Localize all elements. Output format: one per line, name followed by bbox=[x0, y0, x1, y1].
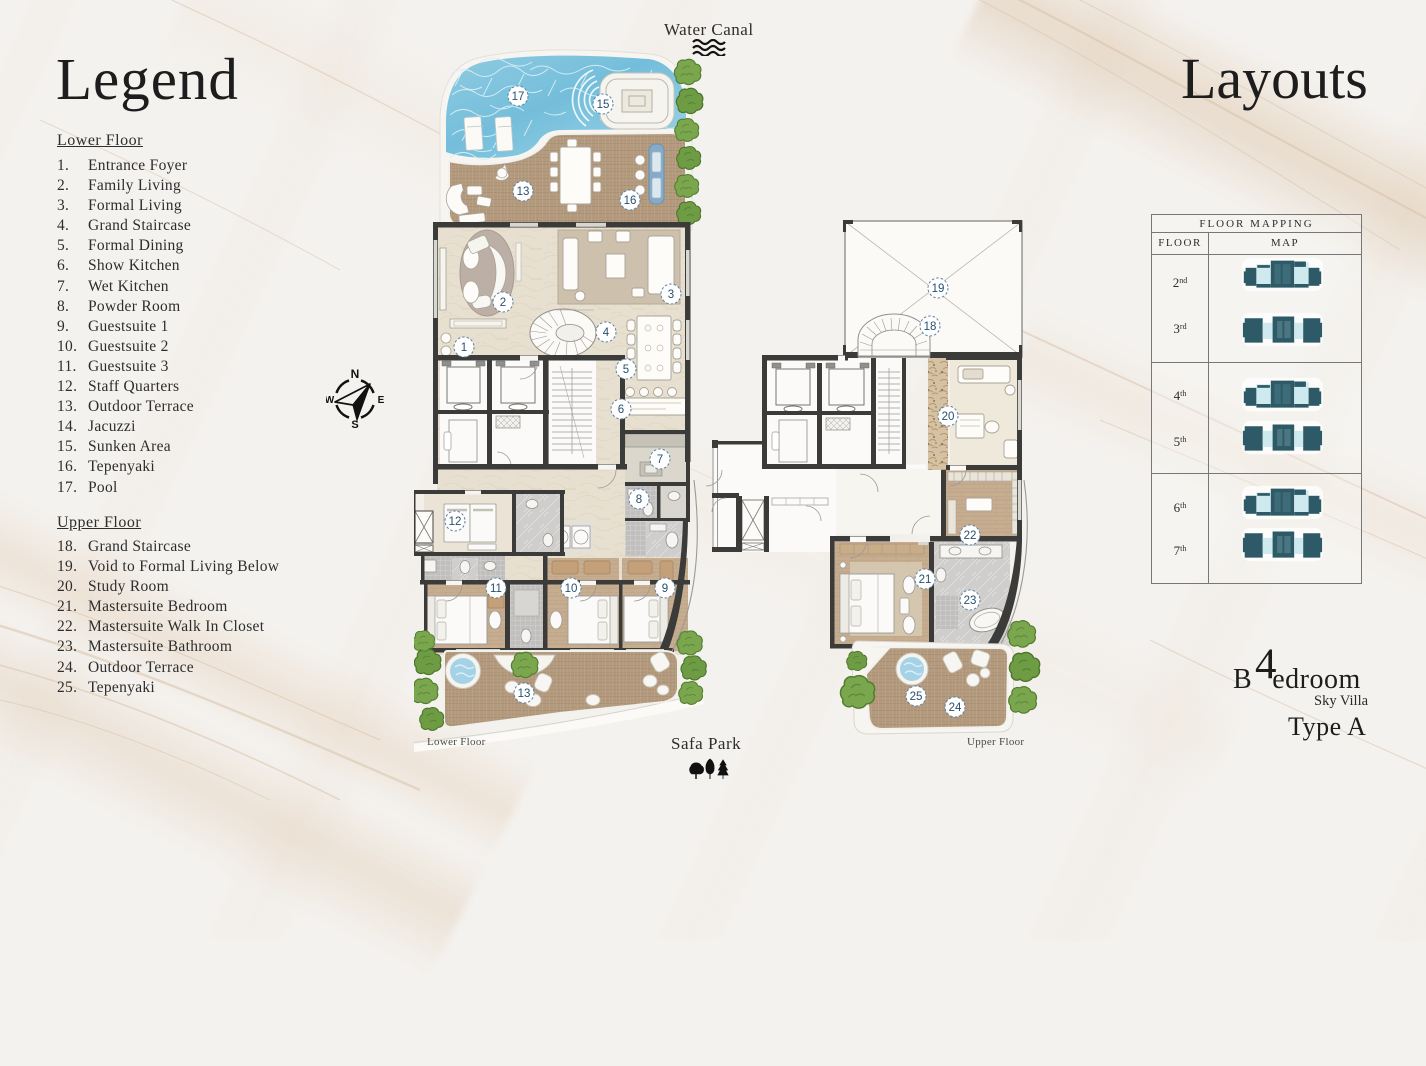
svg-text:S: S bbox=[351, 419, 358, 430]
svg-text:13: 13 bbox=[517, 186, 530, 198]
svg-text:23: 23 bbox=[964, 595, 977, 607]
svg-text:10: 10 bbox=[565, 583, 578, 595]
svg-text:25: 25 bbox=[910, 691, 923, 703]
svg-text:21: 21 bbox=[919, 574, 932, 586]
svg-text:3: 3 bbox=[668, 289, 674, 301]
svg-text:W: W bbox=[326, 395, 335, 406]
svg-text:22: 22 bbox=[964, 530, 977, 542]
svg-text:9: 9 bbox=[662, 583, 668, 595]
svg-text:20: 20 bbox=[942, 411, 955, 423]
svg-text:12: 12 bbox=[449, 516, 462, 528]
svg-text:15: 15 bbox=[597, 99, 610, 111]
svg-text:11: 11 bbox=[490, 583, 502, 595]
svg-text:2: 2 bbox=[500, 297, 506, 309]
svg-text:1: 1 bbox=[461, 342, 467, 354]
svg-text:17: 17 bbox=[512, 91, 525, 103]
svg-text:16: 16 bbox=[624, 195, 637, 207]
svg-text:7: 7 bbox=[657, 454, 663, 466]
svg-text:13: 13 bbox=[518, 688, 531, 700]
svg-text:8: 8 bbox=[636, 494, 642, 506]
svg-text:N: N bbox=[351, 368, 360, 381]
svg-text:18: 18 bbox=[924, 321, 937, 333]
svg-text:24: 24 bbox=[949, 702, 962, 714]
svg-text:19: 19 bbox=[932, 283, 945, 295]
svg-text:5: 5 bbox=[623, 364, 629, 376]
svg-text:6: 6 bbox=[618, 404, 624, 416]
svg-text:4: 4 bbox=[603, 327, 610, 339]
svg-text:E: E bbox=[378, 395, 384, 406]
